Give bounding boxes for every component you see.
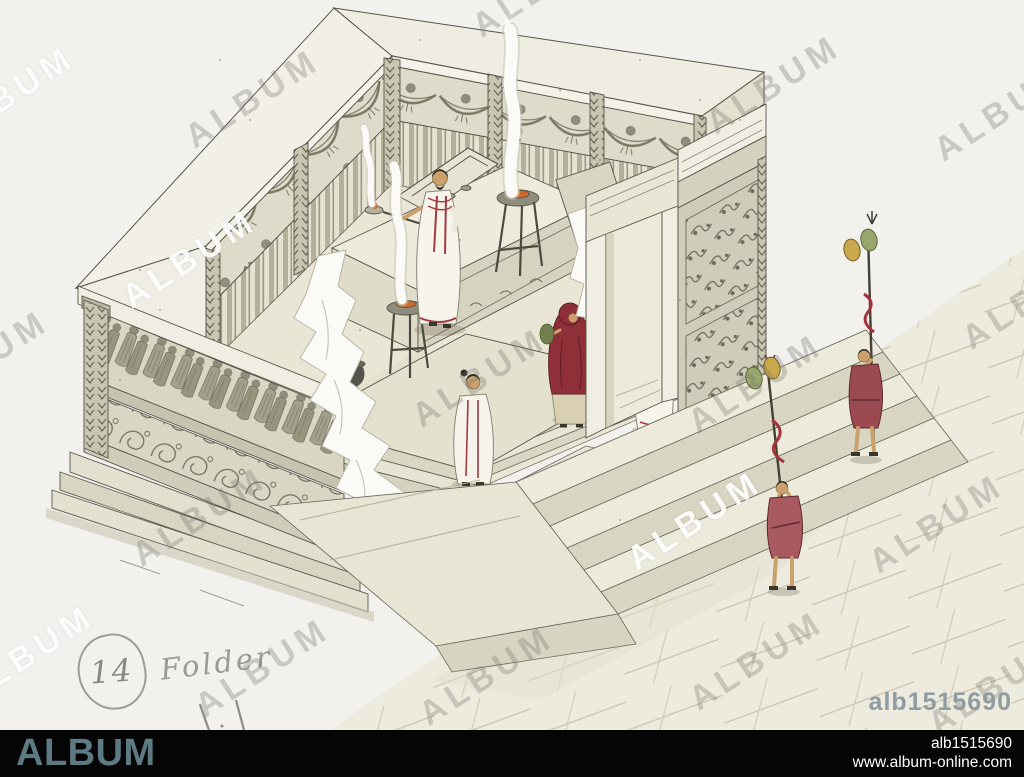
altar-illustration xyxy=(0,0,1024,730)
image-id-watermark: alb1515690 xyxy=(869,688,1012,717)
album-logo: ALBUM xyxy=(16,730,156,777)
stock-image-page: ALBUMALBUMALBUMALBUMALBUMALBUMALBUMALBUM… xyxy=(0,0,1024,777)
footer-image-id: alb1515690 xyxy=(853,735,1012,753)
pencil-circled-number: 14 xyxy=(89,653,135,692)
artwork-area: ALBUMALBUMALBUMALBUMALBUMALBUMALBUMALBUM… xyxy=(0,0,1024,730)
footer-bar: ALBUM alb1515690 www.album-online.com xyxy=(0,730,1024,777)
footer-meta: alb1515690 www.album-online.com xyxy=(853,735,1012,772)
footer-website: www.album-online.com xyxy=(853,754,1012,772)
